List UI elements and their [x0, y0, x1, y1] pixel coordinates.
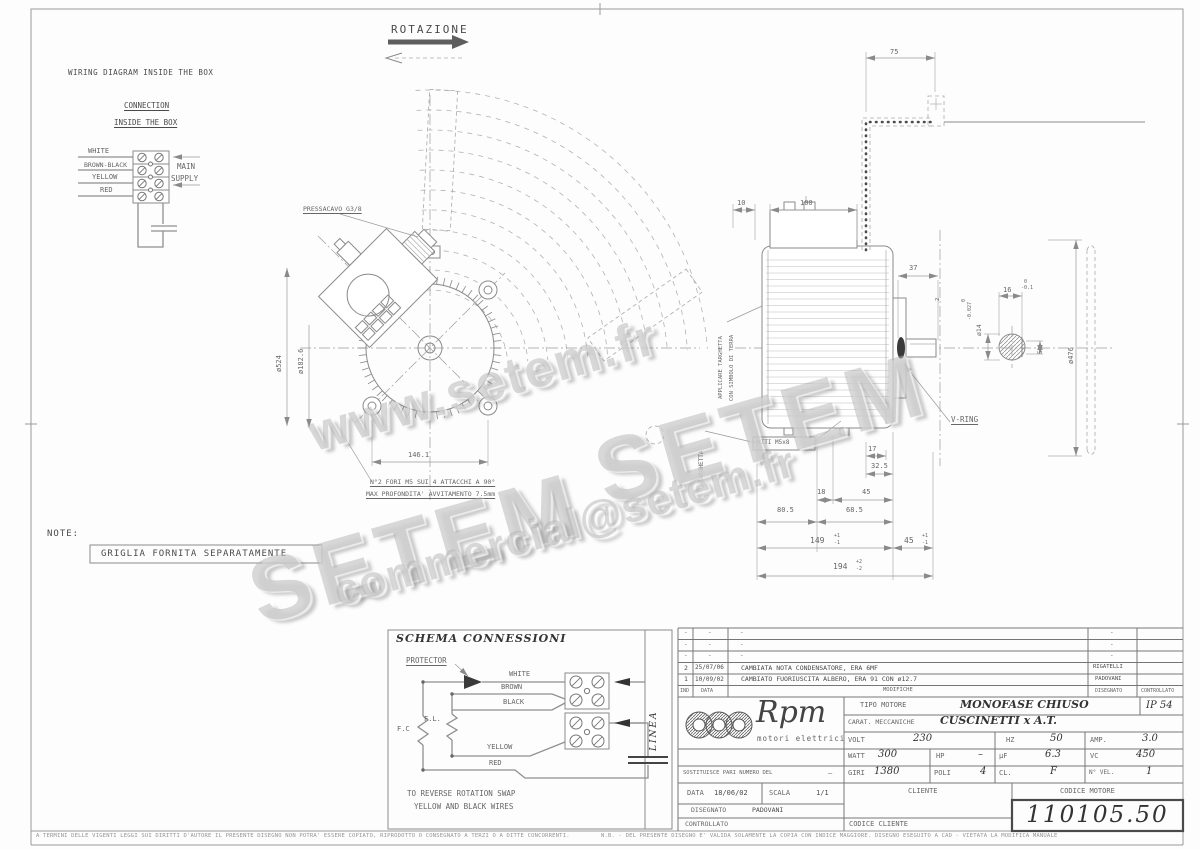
v-ring-seal: [897, 337, 905, 359]
dim-17: 17: [868, 446, 876, 453]
rev-col-modifiche: MODIFICHE: [883, 688, 913, 694]
dim-45b: 45: [904, 537, 914, 545]
dim-10: 10: [737, 200, 745, 207]
volt-label: VOLT: [848, 737, 865, 744]
rotation-label: ROTAZIONE: [391, 24, 469, 36]
ip-value: IP 54: [1146, 701, 1173, 712]
wire-label-red: RED: [100, 187, 113, 194]
dim-75: 75: [890, 49, 898, 56]
dim-16: 16: [1003, 287, 1011, 294]
rev-col-controllato: CONTROLLATO: [1141, 689, 1174, 694]
uf-value: 6.3: [1045, 750, 1061, 761]
watt-label: WATT: [848, 753, 865, 760]
carat-value: CUSCINETTI x A.T.: [940, 715, 1057, 727]
power-cable-dots: [866, 122, 932, 250]
carat-label: CARAT. MECCANICHE: [848, 719, 915, 726]
schema-wire-red: RED: [489, 760, 502, 767]
wiring-subtitle-1: CONNECTION: [124, 102, 169, 110]
dim-2: 2: [936, 298, 942, 301]
arrow-left-icon: [386, 53, 402, 63]
controllato-label: CONTROLLATO: [685, 821, 728, 828]
schema-protector-label: PROTECTOR: [406, 657, 447, 665]
rev-row-desc: -: [740, 642, 744, 648]
rotation-arrows: [386, 35, 469, 63]
schema-wire-white: WHITE: [509, 671, 530, 678]
logo-name: Rpm: [756, 697, 826, 729]
tol-149-bot: -1: [834, 541, 840, 546]
schema-title: SCHEMA CONNESSIONI: [396, 633, 566, 645]
disegnato-value: PADOVANI: [752, 807, 783, 814]
motor-front-view: [287, 89, 707, 500]
rev-row-ind: -: [684, 630, 688, 636]
schema-fc-label: F.C: [397, 726, 410, 733]
hp-value: –: [978, 750, 983, 761]
schema-wire-yellow: YELLOW: [487, 744, 512, 751]
front-terminal-box: [300, 192, 456, 348]
rpm-logo-icon: [686, 712, 752, 738]
poli-value: 4: [980, 767, 986, 778]
schema-wire-brown: BROWN: [501, 684, 522, 691]
wiring-subtitle-2: INSIDE THE BOX: [114, 119, 177, 127]
dim-dia-182: ø182.6: [298, 349, 305, 374]
rev-row-date: 10/09/02: [695, 677, 724, 683]
viti-label: VITI M5x8: [757, 440, 790, 446]
protector-icon: [464, 675, 482, 689]
dim-dia-14: ø14: [976, 324, 983, 336]
hz-label: HZ: [1006, 737, 1014, 744]
tipo-motore-label: TIPO MOTORE: [860, 702, 906, 709]
dim-dia-476: ø476: [1068, 347, 1075, 364]
tol-45b-top: +1: [922, 534, 928, 539]
amp-label: AMP.: [1090, 737, 1107, 744]
dim-45a: 45: [862, 489, 870, 496]
targhetta-label-3: TARGHETTA: [699, 450, 705, 483]
data-label: DATA: [687, 790, 704, 797]
main-supply-1: MAIN: [177, 163, 195, 171]
tipo-motore-value: MONOFASE CHIUSO: [960, 699, 1089, 711]
wire-label-yellow: YELLOW: [92, 174, 117, 181]
rev-row-ind: -: [684, 642, 688, 648]
tol-shaft-bot: -0.027: [968, 302, 973, 320]
targhetta-label-2: CON SIMBOLO DI TERRA: [730, 335, 736, 401]
volt-value: 230: [913, 734, 932, 745]
side-terminal-box: [770, 210, 857, 248]
linea-arrow-icon: [614, 678, 630, 686]
rev-col-disegnato: DISEGNATO: [1095, 689, 1122, 694]
motor-side-view: [705, 52, 1145, 580]
nvel-label: N° VEL.: [1089, 770, 1114, 776]
hp-label: HP: [936, 753, 944, 760]
giri-label: GIRI: [848, 770, 865, 777]
logo-subtitle: motori elettrici: [757, 735, 845, 743]
pressacavo-label: PRESSACAVO G3/8: [303, 206, 362, 213]
watt-value: 300: [878, 750, 897, 761]
cliente-label: CLIENTE: [908, 788, 938, 795]
arrow-right-icon: [452, 35, 469, 49]
tol-194-top: +2: [856, 560, 862, 565]
uf-label: µF: [999, 753, 1007, 760]
vring-label: V-RING: [951, 416, 978, 424]
rev-row-desc: CAMBIATO FUORIUSCITA ALBERO, ERA 91 CON …: [741, 676, 917, 683]
dim-37: 37: [909, 265, 917, 272]
title-block-grid: [678, 628, 1183, 831]
shaft: [906, 339, 936, 357]
capacitor-icon: [138, 203, 177, 247]
fan-sweep-arcs: [415, 90, 707, 363]
cl-value: F: [1050, 767, 1057, 778]
dim-146: 146.1: [408, 452, 429, 459]
disegnato-label: DISEGNATO: [691, 807, 726, 814]
footer-left: A TERMINI DELLE VIGENTI LEGGI SUI DIRITT…: [36, 834, 570, 840]
dim-dia-524: ø524: [276, 355, 283, 372]
rev-row-date: -: [708, 630, 712, 636]
amp-value: 3.0: [1142, 734, 1158, 745]
schema-linea-label: LINEA: [650, 711, 659, 751]
sostituisce-label: SOSTITUISCE PARI NUMERO DEL: [683, 771, 772, 777]
rev-row-by: -: [1110, 642, 1114, 648]
nvel-value: 1: [1146, 767, 1152, 778]
tol-149-top: +1: [834, 534, 840, 539]
data-value: 18/06/02: [714, 790, 748, 797]
rev-col-ind: IND: [680, 689, 689, 694]
rev-row-desc: -: [740, 630, 744, 636]
note-text: GRIGLIA FORNITA SEPARATAMENTE: [101, 550, 287, 559]
codice-motore-label: CODICE MOTORE: [1060, 788, 1115, 795]
rev-row-desc: CAMBIATA NOTA CONDENSATORE, ERA 6MF: [741, 665, 878, 672]
dim-68-5: 68.5: [846, 507, 863, 514]
linea-arrow-icon: [614, 719, 630, 727]
dim-149: 149: [810, 537, 824, 545]
vc-label: VC: [1090, 753, 1098, 760]
rev-row-date: -: [708, 642, 712, 648]
rev-row-by: -: [1110, 630, 1114, 636]
codice-cliente-label: CODICE CLIENTE: [849, 821, 908, 828]
dim-32-5: 32.5: [871, 463, 888, 470]
poli-label: POLI: [934, 770, 951, 777]
main-supply-2: SUPPLY: [171, 175, 198, 183]
front-note-1: N°2 FORI M5 SUI 4 ATTACCHI A 90°: [370, 479, 495, 486]
tol-16-bot: -0.1: [1021, 286, 1033, 291]
schema-wire-black: BLACK: [503, 699, 524, 706]
hz-value: 50: [1050, 734, 1063, 745]
codice-motore-value: 110105.50: [1014, 803, 1181, 827]
schema-note-2: YELLOW AND BLACK WIRES: [414, 803, 513, 811]
rev-row-ind: 1: [684, 676, 688, 683]
dim-194: 194: [833, 563, 847, 571]
footer-right: N.B. - DEL PRESENTE DISEGNO E' VALIDA SO…: [601, 834, 1057, 840]
wire-label-white: WHITE: [88, 148, 109, 155]
vc-value: 450: [1136, 750, 1155, 761]
drawing-sheet: WIRING DIAGRAM INSIDE THE BOX CONNECTION…: [0, 0, 1200, 849]
scala-value: 1/1: [816, 790, 829, 797]
tol-45b-bot: -1: [922, 541, 928, 546]
wire-label-brown-black: BROWN-BLACK: [84, 162, 127, 169]
front-note-2: MAX PROFONDITA' AVVITAMENTO 7.5mm: [366, 491, 495, 498]
rev-row-date: -: [708, 653, 712, 659]
sostituisce-value: –: [828, 770, 832, 777]
rev-row-desc: -: [740, 653, 744, 659]
dim-18: 18: [817, 489, 825, 496]
targhetta-label-1: APPLICARE TARGHETTA: [719, 336, 725, 399]
winding-fl-icon: [447, 714, 457, 740]
rev-row-date: 25/07/06: [695, 665, 724, 671]
rev-row-by: -: [1110, 653, 1114, 659]
schema-fl-label: F.L.: [424, 716, 441, 723]
rev-row-by: RIGATELLI: [1093, 665, 1123, 671]
note-label: NOTE:: [47, 530, 79, 539]
dim-5: 5: [1038, 350, 1044, 354]
wiring-title: WIRING DIAGRAM INSIDE THE BOX: [68, 69, 213, 77]
dim-80-5: 80.5: [777, 507, 794, 514]
schema-note-1: TO REVERSE ROTATION SWAP: [407, 790, 515, 798]
giri-value: 1380: [874, 767, 899, 778]
tol-194-bot: -2: [856, 567, 862, 572]
cl-label: CL.: [999, 770, 1012, 777]
rev-row-ind: 2: [684, 665, 688, 672]
scala-label: SCALA: [769, 790, 790, 797]
rev-row-by: PADOVANI: [1095, 677, 1122, 683]
dim-100: 100: [800, 200, 813, 207]
rev-col-data: DATA: [701, 689, 713, 694]
rev-row-ind: -: [684, 653, 688, 659]
